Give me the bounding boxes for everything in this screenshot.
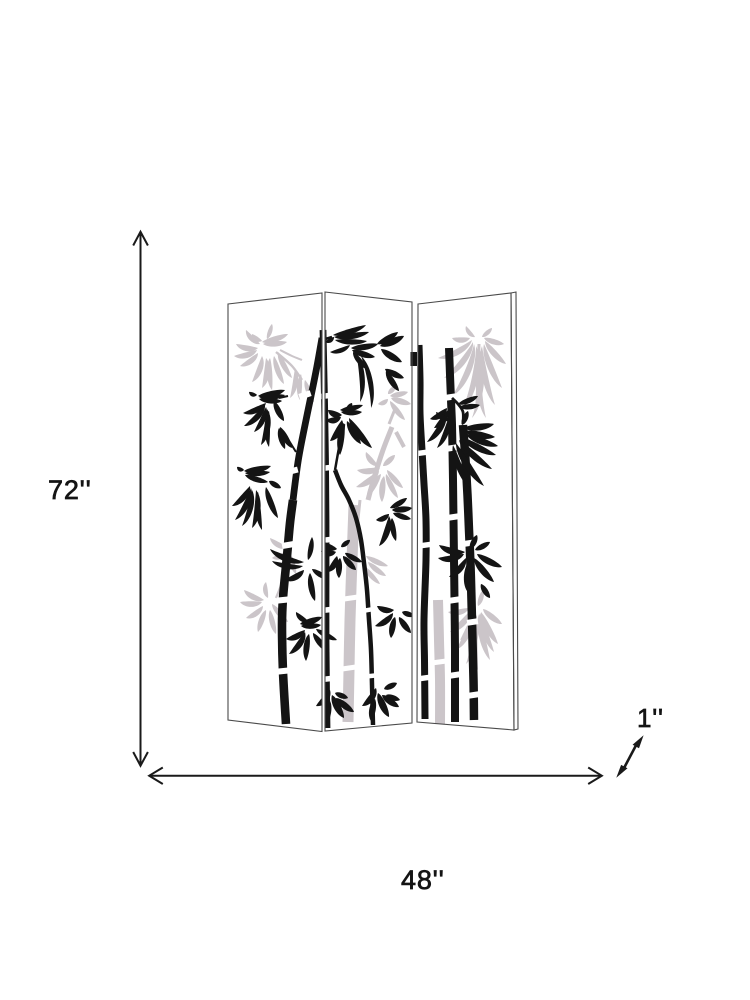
svg-text:48'': 48'' — [401, 865, 445, 895]
svg-text:72'': 72'' — [48, 475, 92, 505]
svg-text:1'': 1'' — [637, 703, 664, 733]
